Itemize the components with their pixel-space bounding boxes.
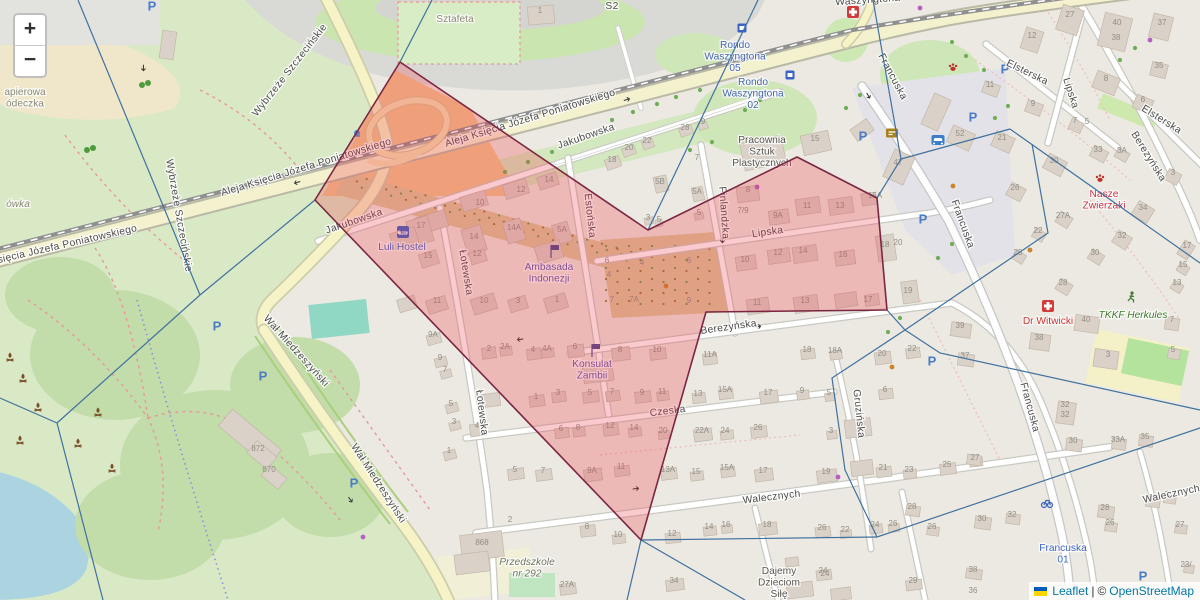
svg-text:P: P: [969, 109, 978, 124]
house-number: 8: [1104, 74, 1109, 83]
house-number: 52: [956, 129, 965, 138]
house-number: 27: [1176, 520, 1185, 529]
house-number: 14: [705, 522, 714, 531]
house-number: 9: [800, 386, 805, 395]
house-number: 5B: [655, 177, 665, 186]
house-number: 17: [1183, 241, 1192, 250]
house-number: 15: [1179, 260, 1188, 269]
house-number: 9: [438, 353, 443, 362]
house-number: 18: [608, 155, 617, 164]
house-number: 5: [513, 465, 518, 474]
house-number: 28: [1101, 503, 1110, 512]
house-number: 27: [1066, 10, 1075, 19]
house-number: 23/: [1180, 560, 1192, 569]
house-number: 22: [1034, 226, 1043, 235]
ukraine-flag-icon: [1034, 587, 1047, 596]
house-number: 25: [943, 460, 952, 469]
poi-label: Nasze: [1090, 189, 1119, 200]
poi-label: Rondo: [720, 40, 750, 51]
poi-label: Dr Witwicki: [1023, 316, 1073, 327]
house-number: 17: [764, 388, 773, 397]
house-number: 27: [971, 453, 980, 462]
svg-text:P: P: [859, 128, 868, 143]
house-number: 20: [894, 238, 903, 247]
house-number: 20: [878, 349, 887, 358]
house-number: 38: [1112, 33, 1121, 42]
poi-label: Waszyngtona: [704, 52, 766, 63]
house-number: 21: [879, 463, 888, 472]
house-number: 9A: [428, 330, 438, 339]
house-number: 5: [1085, 117, 1090, 126]
base-map: PPPPPPPPPP➔➔➔➔➔➔➔➔➔➔128922201875B5A53515…: [0, 0, 1200, 600]
house-number: 21: [998, 133, 1007, 142]
house-number: 9: [1031, 99, 1036, 108]
house-number: 35: [1155, 61, 1164, 70]
house-number: 22: [908, 344, 917, 353]
house-number: 15: [692, 467, 701, 476]
house-number: 7: [443, 365, 448, 374]
leaflet-link[interactable]: Leaflet: [1052, 584, 1088, 598]
house-number: 28: [681, 123, 690, 132]
copyright-prefix: ©: [1097, 584, 1106, 598]
house-number: 3: [1106, 350, 1111, 359]
house-number: 33: [1094, 145, 1103, 154]
house-number: 30: [1091, 248, 1100, 257]
house-number: 18: [763, 520, 772, 529]
house-number: 22: [841, 525, 850, 534]
poi-label: Dzieciom: [758, 578, 800, 589]
pharmacy-icon: [847, 6, 859, 18]
poi-label: Pracownia: [738, 135, 786, 146]
poi-label: Rondo: [738, 77, 768, 88]
house-number: 10: [614, 530, 623, 539]
house-number: 24: [821, 569, 830, 578]
svg-text:P: P: [350, 475, 359, 490]
house-number: 15: [811, 134, 820, 143]
house-number: 18A: [828, 346, 843, 355]
house-number: 23: [905, 465, 914, 474]
house-number: 40: [1113, 18, 1122, 27]
house-number: 13: [694, 389, 703, 398]
house-number: 12: [1028, 31, 1037, 40]
poi-label: Waszyngtona: [722, 89, 784, 100]
house-number: 3: [829, 426, 834, 435]
svg-text:P: P: [148, 0, 157, 13]
house-number: 13: [1173, 278, 1182, 287]
house-number: 32: [1118, 231, 1127, 240]
house-number: 26: [889, 519, 898, 528]
house-number: 8: [585, 522, 590, 531]
house-number: 34: [1139, 203, 1148, 212]
house-number: 3A: [1117, 146, 1127, 155]
house-number: 29: [909, 576, 918, 585]
poi-label: ódeczka: [6, 99, 44, 110]
poi-label: Francuska: [1039, 543, 1087, 554]
house-number: 30: [978, 514, 987, 523]
osm-link[interactable]: OpenStreetMap: [1109, 584, 1194, 598]
svg-text:P: P: [928, 353, 937, 368]
house-number: 38: [969, 565, 978, 574]
house-number: 3: [1171, 168, 1176, 177]
house-number: 40: [1082, 315, 1091, 324]
attribution-bar: Leaflet | © OpenStreetMap: [1029, 582, 1200, 600]
house-number: 5A: [692, 187, 702, 196]
svg-text:P: P: [213, 318, 222, 333]
car-icon: [932, 135, 945, 145]
house-number: 15A: [720, 463, 735, 472]
house-number: 3: [452, 417, 457, 426]
house-number: 26: [1011, 183, 1020, 192]
poi-label: Siłę: [771, 589, 788, 600]
house-number: 32: [1061, 400, 1070, 409]
house-number: 32: [1061, 410, 1070, 419]
house-number: 12: [668, 529, 677, 538]
house-number: 7: [1170, 315, 1175, 324]
poi-label: ówka: [6, 199, 30, 210]
house-number: 22: [643, 136, 652, 145]
house-number: 7: [541, 466, 546, 475]
house-number: 26: [818, 523, 827, 532]
house-number: 7: [695, 153, 700, 162]
house-number: 15A: [718, 385, 733, 394]
house-number: 1: [538, 6, 543, 15]
house-number: 28: [1059, 278, 1068, 287]
street-label: S2: [605, 1, 618, 12]
house-number: 870: [262, 465, 276, 474]
house-number: 30: [1069, 436, 1078, 445]
house-number: 3: [646, 213, 651, 222]
house-number: 19: [904, 286, 913, 295]
house-number: 19: [822, 467, 831, 476]
house-number: 39: [956, 321, 965, 330]
house-number: 1: [447, 446, 452, 455]
poi-label: TKKF Herkules: [1099, 310, 1168, 321]
house-number: 868: [475, 538, 489, 547]
svg-text:P: P: [919, 211, 928, 226]
oneway-arrow-icon: ➔: [139, 64, 149, 72]
parking-icon: P: [350, 475, 359, 490]
house-number: 2: [508, 515, 513, 524]
house-number: 7: [1073, 116, 1078, 125]
house-number: 17: [759, 466, 768, 475]
house-number: 11A: [703, 350, 717, 359]
poi-label: 01: [1057, 555, 1069, 566]
house-number: 16: [722, 520, 731, 529]
house-number: 22A: [695, 426, 710, 435]
parking-icon: P: [259, 368, 268, 383]
parking-icon: P: [928, 353, 937, 368]
house-number: 33A: [1111, 435, 1126, 444]
map-canvas[interactable]: PPPPPPPPPP➔➔➔➔➔➔➔➔➔➔128922201875B5A53515…: [0, 0, 1200, 600]
house-number: 5: [827, 388, 832, 397]
poi-label: 02: [747, 100, 759, 111]
zoom-out-button[interactable]: −: [15, 46, 45, 76]
house-number: 6: [883, 385, 888, 394]
parking-icon: P: [148, 0, 157, 13]
house-number: 28: [908, 502, 917, 511]
poi-label: Sztuk: [749, 147, 775, 158]
parking-icon: P: [919, 211, 928, 226]
house-number: 37: [1158, 18, 1167, 27]
house-number: 38: [1035, 333, 1044, 342]
parking-icon: P: [969, 109, 978, 124]
parking-icon: P: [213, 318, 222, 333]
house-number: 27A: [560, 580, 575, 589]
bus-stop-icon: [786, 71, 795, 80]
house-number: 35: [1141, 432, 1150, 441]
house-number: 34: [670, 576, 679, 585]
svg-text:P: P: [259, 368, 268, 383]
attribution-separator: |: [1091, 584, 1094, 598]
house-number: 32: [1008, 510, 1017, 519]
house-number: 24: [721, 426, 730, 435]
house-number: 26: [754, 423, 763, 432]
pharmacy-icon: [1042, 300, 1054, 312]
zoom-control: + −: [13, 13, 47, 78]
house-number: 5: [449, 399, 454, 408]
parking-icon: P: [859, 128, 868, 143]
house-number: 872: [251, 444, 265, 453]
house-number: 26: [1106, 518, 1115, 527]
poi-label: Przedszkole: [499, 557, 555, 568]
poi-label: Sztafeta: [436, 14, 474, 25]
house-number: 13A: [661, 465, 676, 474]
house-number: 20: [625, 143, 634, 152]
house-number: 36: [969, 586, 978, 595]
poi-label: apierowa: [4, 87, 46, 98]
poi-label: 05: [729, 63, 741, 74]
poi-label: Dajemy: [762, 566, 797, 577]
house-number: 5: [657, 215, 662, 224]
zoom-in-button[interactable]: +: [15, 15, 45, 46]
house-number: 5: [1171, 345, 1176, 354]
house-number: 11: [986, 80, 995, 89]
house-number: 18: [803, 345, 812, 354]
house-number: 27A: [1056, 211, 1071, 220]
house-number: 26: [928, 522, 937, 531]
poi-label: nr 292: [513, 569, 542, 580]
